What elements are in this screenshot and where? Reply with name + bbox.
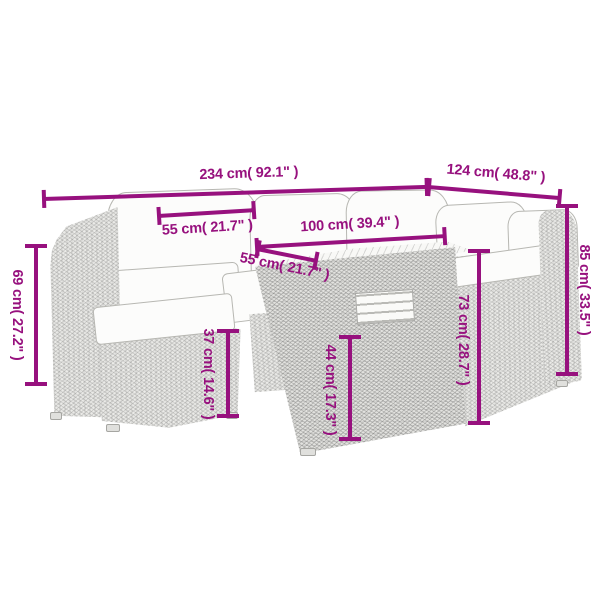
furniture-dimension-diagram: 234 cm( 92.1" ) 124 cm( 48.8" ) 55 cm( 2…	[0, 0, 600, 600]
dimension-tick	[468, 249, 490, 253]
dimension-tick	[339, 437, 361, 441]
dimension-label: 44 cm( 17.3" )	[320, 305, 340, 475]
dimension-back-height	[565, 205, 569, 375]
dimension-tick	[217, 329, 239, 333]
furniture-foot	[556, 380, 568, 387]
dimension-tick	[42, 190, 47, 208]
dimension-label: 69 cm( 27.2" )	[7, 230, 27, 400]
dimension-table-height	[477, 250, 481, 424]
dimension-label: 37 cm( 14.6" )	[198, 289, 218, 459]
dimension-tick	[25, 382, 47, 386]
dimension-table-front-height	[348, 336, 352, 440]
coffee-table-front	[253, 243, 468, 458]
dimension-label: 234 cm( 92.1" )	[70, 160, 427, 187]
furniture-foot	[300, 448, 316, 456]
dimension-right-depth: 124 cm( 48.8" )	[428, 185, 561, 200]
dimension-seat-height	[226, 330, 230, 417]
dimension-label: 73 cm( 28.7" )	[453, 255, 473, 425]
furniture-foot	[50, 412, 62, 420]
dimension-tick	[339, 335, 361, 339]
furniture-foot	[106, 424, 120, 432]
table-shelf	[355, 289, 415, 325]
dimension-tick	[217, 414, 239, 418]
dimension-label: 85 cm( 33.5" )	[574, 205, 594, 375]
dimension-left-back-height	[34, 245, 38, 385]
dimension-tick	[25, 244, 47, 248]
dimension-label: 124 cm( 48.8" )	[429, 160, 563, 187]
